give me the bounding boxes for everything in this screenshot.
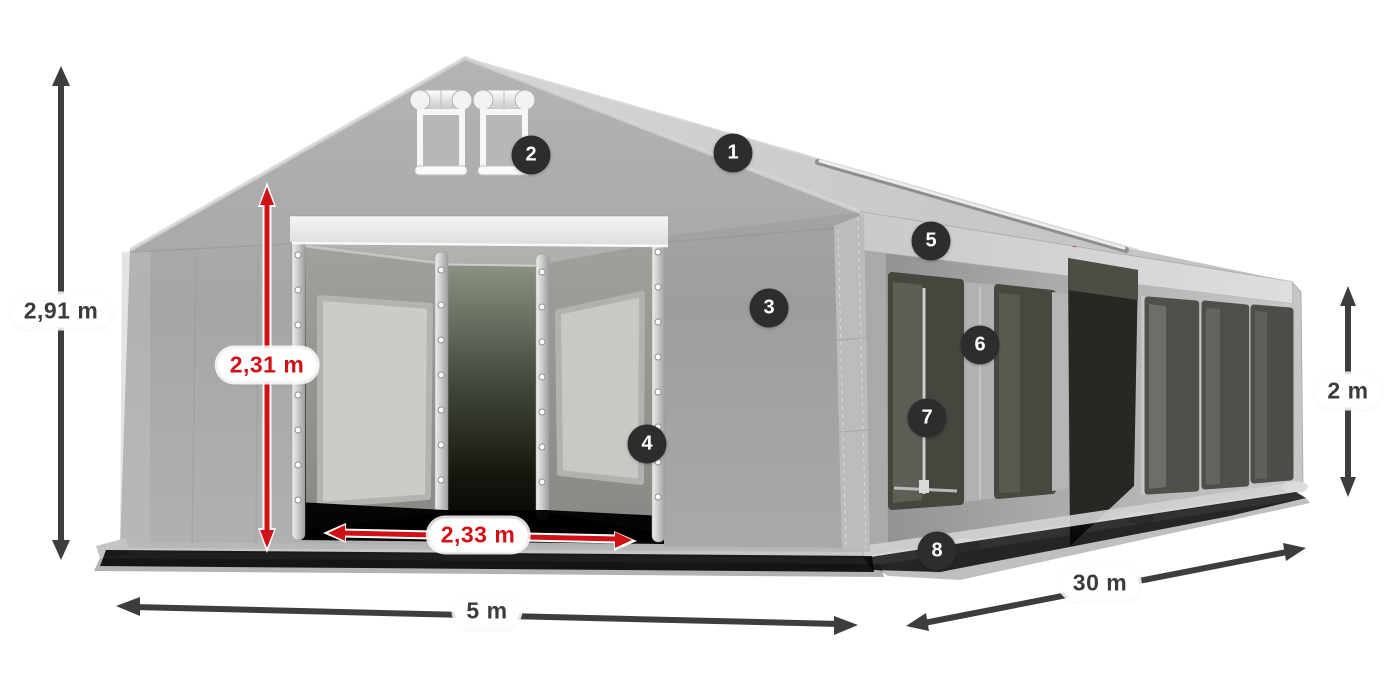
vent-bottom-bar bbox=[415, 166, 467, 175]
door-panel-right bbox=[536, 242, 664, 534]
tent-illustration bbox=[0, 0, 1400, 700]
callout-5-valance[interactable]: 5 bbox=[912, 222, 951, 261]
callout-1-roof[interactable]: 1 bbox=[714, 134, 753, 173]
total-height-arrow bbox=[49, 60, 73, 566]
tent-dimensions-diagram: 2,91 m 2,31 m 2,33 m 5 m 30 m 2 m 1 2 3 … bbox=[0, 0, 1400, 700]
vent-roll-cap bbox=[473, 90, 493, 110]
window-pane bbox=[1206, 308, 1220, 485]
vent-roll-cap bbox=[410, 90, 430, 110]
window-pane bbox=[893, 282, 922, 503]
vent-frame bbox=[420, 112, 462, 170]
pole-joint bbox=[919, 480, 929, 493]
panel-pole bbox=[435, 252, 448, 516]
side-window-3 bbox=[1148, 300, 1196, 491]
tent bbox=[94, 58, 1310, 580]
callout-6-side-wall[interactable]: 6 bbox=[961, 326, 1000, 365]
side-window-5 bbox=[1254, 308, 1290, 480]
window-pane bbox=[1149, 304, 1166, 489]
callout-3-front-wall[interactable]: 3 bbox=[750, 289, 789, 328]
window-pane bbox=[999, 293, 1020, 493]
callout-8-skirt[interactable]: 8 bbox=[918, 532, 957, 571]
roof-vent-1 bbox=[410, 90, 472, 175]
callout-7-window[interactable]: 7 bbox=[908, 399, 947, 438]
vent-roll-cap bbox=[452, 90, 472, 110]
width-arrow bbox=[111, 594, 863, 637]
entrance-header-bar bbox=[290, 216, 668, 246]
side-wall-strip bbox=[1052, 292, 1068, 491]
side-window-1 bbox=[892, 276, 960, 506]
window-pane bbox=[1255, 311, 1267, 479]
side-window-4 bbox=[1205, 304, 1246, 486]
left-corner-band bbox=[120, 250, 150, 548]
door-jamb-left bbox=[292, 236, 305, 540]
side-window-2 bbox=[998, 288, 1068, 495]
entrance bbox=[290, 216, 668, 544]
side-window-mullion bbox=[964, 282, 996, 502]
callout-2-vents[interactable]: 2 bbox=[512, 136, 551, 175]
side-height-arrow bbox=[1337, 280, 1359, 503]
door-panel-window bbox=[320, 298, 430, 505]
door-panel-left bbox=[306, 244, 448, 530]
callout-4-door[interactable]: 4 bbox=[628, 425, 667, 464]
vent-roll-cap bbox=[515, 90, 535, 110]
right-wall-shade bbox=[664, 212, 864, 552]
